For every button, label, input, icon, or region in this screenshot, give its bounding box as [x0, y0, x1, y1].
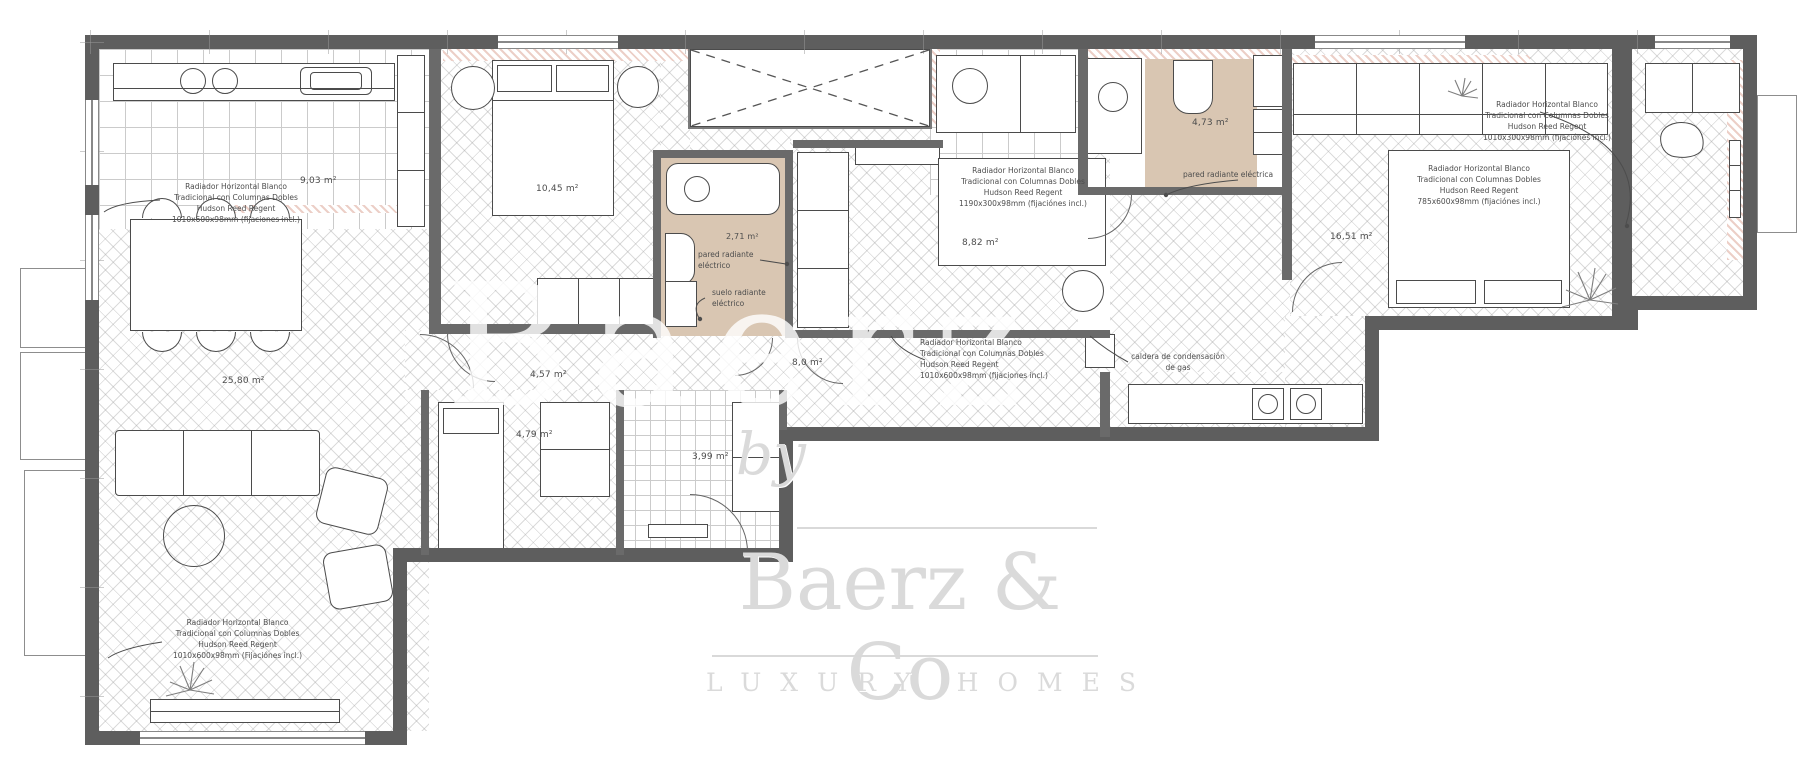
hall-radiator-label: Radiador Horizontal Blanco Tradicional c…	[920, 338, 1075, 382]
window-bay-2	[20, 352, 86, 460]
window-top-3	[1655, 35, 1730, 49]
utility-sink	[952, 68, 988, 104]
pillow	[443, 408, 499, 434]
pillow	[556, 65, 609, 92]
wall-bathroom1-right	[785, 150, 793, 338]
kitchen-sink-basin	[310, 72, 362, 90]
window-bay-1	[20, 268, 86, 348]
window-top-2	[1315, 35, 1465, 49]
watermark-line-top	[797, 527, 1097, 529]
wall-step-2	[779, 427, 793, 562]
bedroom3-area-label: 16,51 m²	[1330, 232, 1373, 242]
wall-innerhall-left	[421, 390, 429, 555]
bathroom2-area-label: 4,73 m²	[1192, 118, 1229, 128]
closet-divider	[540, 449, 610, 450]
bench-divider	[578, 278, 579, 326]
window-bay-3	[24, 470, 86, 656]
washing-machine-door	[1258, 394, 1278, 414]
laundry-counter	[1128, 384, 1363, 424]
radiator-fin	[1729, 165, 1741, 166]
nook-floor	[661, 49, 690, 158]
desk-divider	[1692, 63, 1693, 113]
window-bay-right	[1757, 95, 1797, 233]
watermark-line-bottom	[712, 655, 1098, 657]
bathroom1-floor-heating-label: suelo radiante eléctrico	[712, 288, 790, 310]
wall-bedroom2-top	[793, 140, 943, 148]
pillow	[497, 65, 552, 92]
bathroom1-sink	[665, 281, 697, 327]
radiator-fin	[1729, 190, 1741, 191]
wardrobe-divider	[797, 268, 849, 269]
boiler	[1085, 334, 1115, 368]
closet-divider	[732, 457, 780, 458]
wall-bed3-bottom	[1365, 316, 1624, 330]
patio-lightwell	[690, 49, 930, 127]
floor-plan: Radiador Horizontal Blanco Tradicional c…	[0, 0, 1801, 758]
bathroom2-wall-heating-label: pared radiante eléctrica	[1168, 170, 1288, 181]
wall-bedroom2-hall	[790, 330, 1110, 338]
cooktop-burner	[212, 68, 238, 94]
hall2-area-label: 8,0 m²	[792, 358, 823, 368]
radiator-unit	[1729, 140, 1741, 218]
pillow	[1484, 280, 1562, 304]
kitchen-area-label: 9,03 m²	[300, 176, 337, 186]
tv-bench-line	[150, 711, 340, 712]
bedroom3-wall-radiator-label: Radiador Horizontal Blanco Tradicional c…	[1462, 100, 1632, 144]
sofa-cushion-line	[251, 430, 252, 496]
wall-right-bottom	[1624, 296, 1757, 310]
living-radiator-label: Radiador Horizontal Blanco Tradicional c…	[160, 618, 315, 662]
wall-mid-bottom	[393, 548, 793, 562]
wardrobe-divider	[1419, 63, 1420, 135]
bedroom2-radiator-label: Radiador Horizontal Blanco Tradicional c…	[946, 166, 1100, 210]
kitchen-cabinet-column	[397, 55, 425, 227]
wardrobe-divider	[1356, 63, 1357, 135]
wall-foyer-right	[779, 390, 787, 430]
coffee-table	[163, 505, 225, 567]
cooktop-burner	[180, 68, 206, 94]
bedroom1-area-label: 10,45 m²	[536, 184, 579, 194]
sofa	[115, 430, 320, 496]
bathroom1-wall-heating-label: pared radiante eléctrico	[698, 250, 770, 272]
armchair	[321, 543, 394, 611]
wall-foyer-left	[616, 390, 624, 555]
sofa-cushion-line	[183, 430, 184, 496]
boiler-label: caldera de condensación de gas	[1118, 352, 1238, 374]
dimension-ticks-top	[90, 30, 1745, 54]
nightstand-round	[1062, 270, 1104, 312]
utility-divider	[1020, 55, 1021, 133]
bed-sheet-line	[492, 100, 614, 101]
hall-area-label: 4,57 m²	[530, 370, 567, 380]
dryer-door	[1296, 394, 1316, 414]
wardrobe	[797, 152, 849, 328]
wall-bedroom3-left	[1282, 195, 1292, 280]
bedroom3-bed-radiator-label: Radiador Horizontal Blanco Tradicional c…	[1395, 164, 1563, 208]
nightstand-round	[617, 66, 659, 108]
window-bottom-1	[140, 731, 365, 745]
foyer-area-label: 3,99 m²	[692, 452, 729, 462]
wall-corridor-step	[1100, 372, 1110, 437]
toilet	[665, 233, 695, 285]
wall-bathroom1-left	[653, 158, 661, 338]
bathroom1-area-label: 2,71 m²	[726, 232, 759, 241]
shower-drain	[1098, 82, 1128, 112]
bedroom1-bench	[537, 278, 661, 326]
wall-kitchen-bedroom1	[429, 49, 441, 330]
cabinet-divider	[397, 112, 425, 113]
nightstand-round	[451, 66, 495, 110]
bathtub-drain	[684, 176, 710, 202]
bench-divider	[619, 278, 620, 326]
wall-step-3	[1365, 316, 1379, 441]
wardrobe-divider	[797, 210, 849, 211]
wall-bathroom1-top	[653, 150, 793, 158]
inner-hall-area-label: 4,79 m²	[516, 430, 553, 440]
wall-divider-right-rooms	[1612, 49, 1632, 316]
window-left-2	[85, 215, 99, 300]
window-left-1	[85, 100, 99, 185]
wall-bedroom1-hall	[429, 324, 661, 334]
cabinet-divider	[397, 170, 425, 171]
living-area-label: 25,80 m²	[222, 376, 265, 386]
window-top-1	[498, 35, 618, 49]
watermark-tagline: LUXURY HOMES	[706, 668, 1106, 697]
dining-table	[130, 219, 302, 331]
pillow	[1396, 280, 1476, 304]
watermark-brand: Baerz & Co	[690, 538, 1110, 718]
wall-right	[1743, 35, 1757, 310]
wall-step-1	[393, 548, 407, 745]
wall-bathroom2-bottom	[1078, 187, 1290, 195]
kitchen-radiator-label: Radiador Horizontal Blanco Tradicional c…	[160, 182, 312, 226]
wall-hall-bottom	[779, 427, 1379, 441]
bedroom2-area-label: 8,82 m²	[962, 238, 999, 248]
toilet	[1173, 60, 1213, 114]
